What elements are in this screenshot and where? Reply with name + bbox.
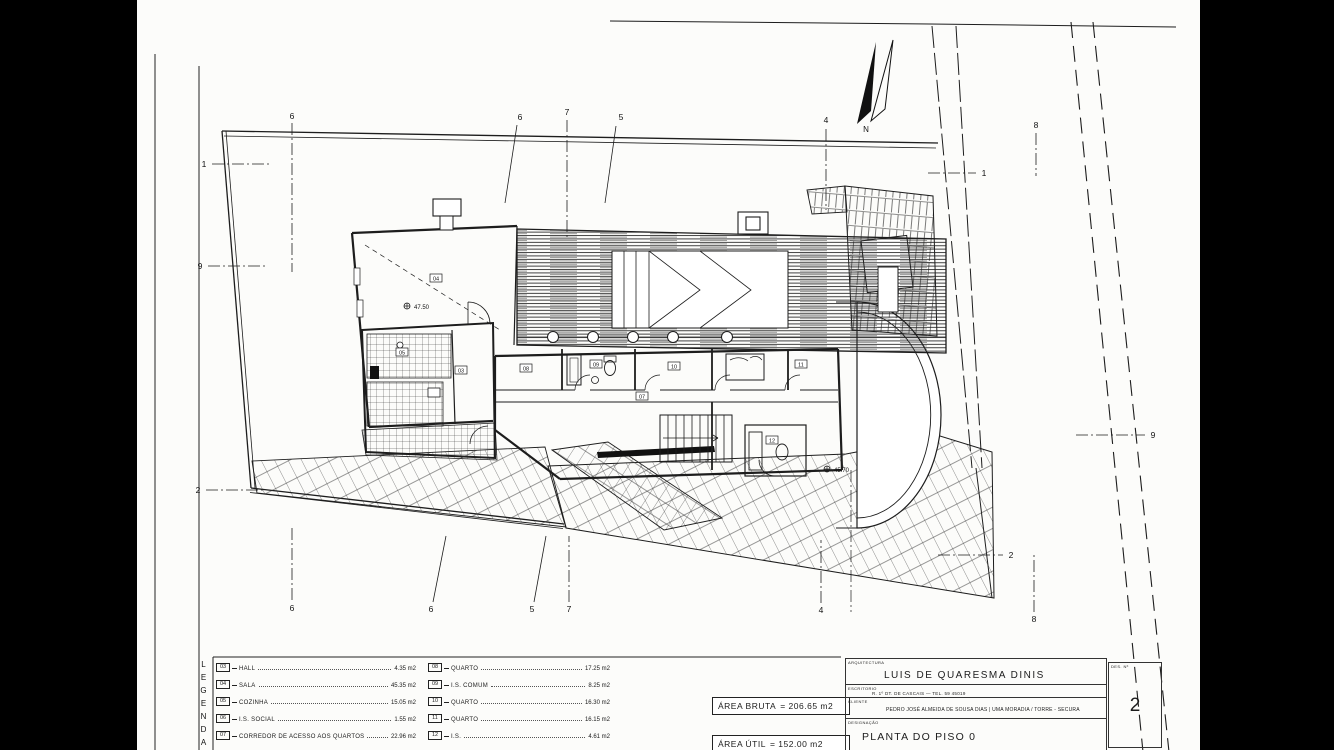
area-util-value: = 152.00 m2 bbox=[770, 739, 823, 749]
title-block-designation-row: DESIGNAÇÃO PLANTA DO PISO 0 bbox=[846, 719, 1106, 749]
legend-item-area: 8.25 m2 bbox=[588, 683, 610, 689]
drawing-title: PLANTA DO PISO 0 bbox=[846, 719, 1106, 743]
legend-item: 11 QUARTO 16.15 m2 bbox=[428, 712, 610, 723]
legend-title: LEGENDA bbox=[199, 660, 208, 750]
scanned-drawing-sheet: N bbox=[0, 0, 1334, 750]
legend-column-2: 08 QUARTO 17.25 m2 09 I.S. COMUM 8.25 m2… bbox=[428, 661, 610, 746]
area-bruta-label: ÁREA BRUTA bbox=[718, 701, 776, 711]
sheet-text-overlay: LEGENDA 03 HALL 4.35 m2 04 SALA 45.35 m2… bbox=[0, 0, 1334, 750]
legend-item-number: 12 bbox=[428, 731, 442, 740]
legend-tie bbox=[444, 668, 449, 669]
legend-item-number: 09 bbox=[428, 680, 442, 689]
legend-item: 05 COZINHA 15.05 m2 bbox=[216, 695, 416, 706]
legend-item-label: COZINHA bbox=[239, 700, 268, 706]
legend-item: 10 QUARTO 16.30 m2 bbox=[428, 695, 610, 706]
legend-item-label: QUARTO bbox=[451, 666, 478, 672]
legend-item-number: 11 bbox=[428, 714, 442, 723]
area-util-label: ÁREA ÚTIL bbox=[718, 739, 766, 749]
legend-item: 12 I.S. 4.61 m2 bbox=[428, 729, 610, 740]
client-name: PEDRO JOSÉ ALMEIDA DE SOUSA DIAS | UMA M… bbox=[846, 698, 1106, 713]
legend-item: 07 CORREDOR DE ACESSO AOS QUARTOS 22.96 … bbox=[216, 729, 416, 740]
legend-tie bbox=[232, 702, 237, 703]
title-block-client-row: CLIENTE PEDRO JOSÉ ALMEIDA DE SOUSA DIAS… bbox=[846, 698, 1106, 719]
legend-item: 08 QUARTO 17.25 m2 bbox=[428, 661, 610, 672]
legend-item-area: 16.30 m2 bbox=[585, 700, 610, 706]
legend-tie bbox=[232, 719, 237, 720]
legend-tie bbox=[444, 685, 449, 686]
legend-leader-dots bbox=[258, 669, 391, 670]
legend-item: 04 SALA 45.35 m2 bbox=[216, 678, 416, 689]
office-info: R. 1º DT. DE CASCAIS — TEL. 59 45019 bbox=[846, 685, 1106, 696]
legend-column-1: 03 HALL 4.35 m2 04 SALA 45.35 m2 05 COZI… bbox=[216, 661, 416, 746]
sheet-number-caption: DES. Nº bbox=[1111, 664, 1129, 669]
legend-item-area: 4.35 m2 bbox=[394, 666, 416, 672]
legend-item-label: I.S. COMUM bbox=[451, 683, 488, 689]
legend-item-number: 03 bbox=[216, 663, 230, 672]
legend-item-label: CORREDOR DE ACESSO AOS QUARTOS bbox=[239, 734, 364, 740]
title-block-office-row: ESCRITORIO R. 1º DT. DE CASCAIS — TEL. 5… bbox=[846, 685, 1106, 698]
title-block-architect-row: ARQUITECTURA LUIS DE QUARESMA DINIS bbox=[846, 659, 1106, 685]
legend-leader-dots bbox=[259, 686, 388, 687]
legend-item-area: 16.15 m2 bbox=[585, 717, 610, 723]
legend-item-number: 04 bbox=[216, 680, 230, 689]
legend-item-label: I.S. bbox=[451, 734, 461, 740]
legend-leader-dots bbox=[491, 686, 585, 687]
legend-item-number: 05 bbox=[216, 697, 230, 706]
legend-tie bbox=[444, 719, 449, 720]
office-caption: ESCRITORIO bbox=[848, 686, 877, 691]
area-bruta-box: ÁREA BRUTA= 206.65 m2 bbox=[712, 697, 850, 715]
sheet-number-box: DES. Nº 2 bbox=[1108, 662, 1162, 748]
legend-leader-dots bbox=[481, 720, 582, 721]
legend-leader-dots bbox=[481, 703, 582, 704]
legend-leader-dots bbox=[367, 737, 387, 738]
area-bruta-value: = 206.65 m2 bbox=[780, 701, 833, 711]
legend-item: 06 I.S. SOCIAL 1.55 m2 bbox=[216, 712, 416, 723]
legend-item: 09 I.S. COMUM 8.25 m2 bbox=[428, 678, 610, 689]
legend-item-number: 06 bbox=[216, 714, 230, 723]
legend-item-label: HALL bbox=[239, 666, 255, 672]
legend-item-label: SALA bbox=[239, 683, 256, 689]
legend-item-area: 17.25 m2 bbox=[585, 666, 610, 672]
legend-leader-dots bbox=[481, 669, 582, 670]
sheet-number: 2 bbox=[1109, 695, 1161, 717]
architecture-caption: ARQUITECTURA bbox=[848, 660, 884, 665]
client-caption: CLIENTE bbox=[848, 699, 868, 704]
legend-tie bbox=[444, 702, 449, 703]
legend-item-area: 15.05 m2 bbox=[391, 700, 416, 706]
legend-leader-dots bbox=[271, 703, 388, 704]
legend-item-area: 4.61 m2 bbox=[588, 734, 610, 740]
legend-tie bbox=[444, 736, 449, 737]
legend-item-area: 22.96 m2 bbox=[391, 734, 416, 740]
legend-tie bbox=[232, 685, 237, 686]
legend-leader-dots bbox=[464, 737, 585, 738]
legend-leader-dots bbox=[278, 720, 391, 721]
legend-item-label: QUARTO bbox=[451, 700, 478, 706]
legend-tie bbox=[232, 736, 237, 737]
legend-item-label: I.S. SOCIAL bbox=[239, 717, 275, 723]
legend-item-number: 07 bbox=[216, 731, 230, 740]
legend-item-area: 1.55 m2 bbox=[394, 717, 416, 723]
legend-tie bbox=[232, 668, 237, 669]
legend-item-area: 45.35 m2 bbox=[391, 683, 416, 689]
legend-item: 03 HALL 4.35 m2 bbox=[216, 661, 416, 672]
area-util-box: ÁREA ÚTIL= 152.00 m2 bbox=[712, 735, 850, 750]
architect-name: LUIS DE QUARESMA DINIS bbox=[846, 659, 1106, 681]
legend-item-label: QUARTO bbox=[451, 717, 478, 723]
title-block: ARQUITECTURA LUIS DE QUARESMA DINIS ESCR… bbox=[845, 658, 1107, 750]
designation-caption: DESIGNAÇÃO bbox=[848, 720, 879, 725]
legend-item-number: 08 bbox=[428, 663, 442, 672]
legend-item-number: 10 bbox=[428, 697, 442, 706]
